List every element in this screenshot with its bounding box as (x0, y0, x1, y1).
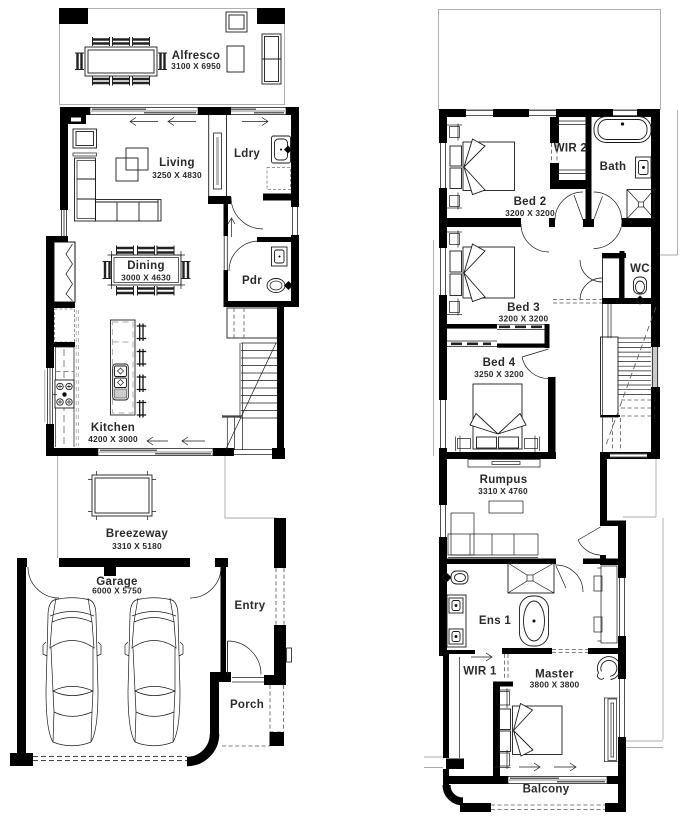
svg-text:3100 X 6950: 3100 X 6950 (171, 61, 221, 71)
svg-text:3000 X 4630: 3000 X 4630 (121, 273, 171, 283)
svg-text:3310 X 5180: 3310 X 5180 (112, 541, 162, 551)
svg-text:WIR 2: WIR 2 (554, 143, 587, 155)
svg-text:Dining: Dining (127, 260, 165, 272)
svg-text:Bath: Bath (600, 161, 627, 173)
svg-text:WIR 1: WIR 1 (463, 666, 497, 678)
svg-text:Bed 3: Bed 3 (507, 302, 540, 314)
svg-text:3310 X 4760: 3310 X 4760 (478, 486, 528, 496)
svg-text:Living: Living (159, 157, 195, 169)
svg-text:Bed 4: Bed 4 (483, 357, 516, 369)
svg-text:3250 X 3200: 3250 X 3200 (474, 369, 524, 379)
svg-text:3250 X 4830: 3250 X 4830 (152, 170, 202, 180)
svg-text:3800 X 3800: 3800 X 3800 (530, 680, 580, 690)
svg-text:3200 X 3200: 3200 X 3200 (499, 314, 549, 324)
svg-text:3200 X 3200: 3200 X 3200 (505, 208, 555, 218)
svg-text:Ens 1: Ens 1 (479, 615, 511, 627)
svg-text:Breezeway: Breezeway (106, 528, 168, 540)
svg-text:6000 X 5750: 6000 X 5750 (92, 586, 142, 596)
svg-text:Ldry: Ldry (234, 148, 260, 160)
svg-text:Bed 2: Bed 2 (514, 196, 547, 208)
svg-text:WC: WC (630, 263, 650, 275)
svg-text:Kitchen: Kitchen (91, 422, 135, 434)
svg-text:Balcony: Balcony (523, 784, 570, 796)
svg-text:4200 X 3000: 4200 X 3000 (88, 434, 138, 444)
svg-text:Porch: Porch (230, 699, 264, 711)
svg-text:Pdr: Pdr (242, 275, 262, 287)
svg-text:Rumpus: Rumpus (480, 474, 528, 486)
svg-text:Entry: Entry (235, 600, 266, 612)
